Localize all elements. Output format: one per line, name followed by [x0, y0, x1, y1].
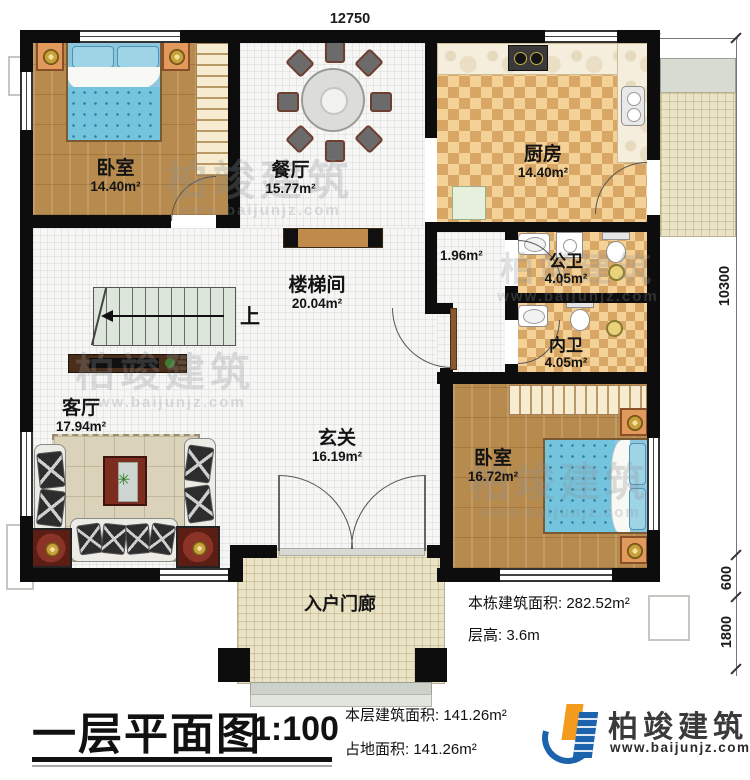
room-label-kitchen: 厨房 14.40m²	[498, 144, 588, 180]
side-table	[176, 526, 220, 568]
porch-pillar-left	[218, 648, 250, 682]
pillow	[117, 46, 159, 68]
room-area: 4.05m²	[528, 355, 604, 370]
room-area: 16.19m²	[292, 449, 382, 464]
room-label-bath-inner: 内卫 4.05m²	[528, 336, 604, 370]
room-label-porch: 入户门廊	[290, 594, 390, 614]
dimension-top: 12750	[300, 11, 400, 27]
room-name: 卧室	[448, 448, 538, 469]
room-area: 16.72m²	[448, 469, 538, 484]
cushion	[148, 522, 176, 555]
cushion	[184, 444, 215, 483]
entry-door-leaf	[278, 475, 280, 551]
note-value: 282.52m²	[566, 595, 629, 612]
bed	[543, 438, 649, 534]
page-title: 一层平面图	[32, 698, 262, 762]
window	[545, 30, 617, 43]
side-step-outline	[648, 595, 690, 641]
room-name: 入户门廊	[290, 594, 390, 614]
dimension-line-right	[736, 39, 737, 676]
pillow	[629, 443, 646, 485]
room-name: 客厅	[36, 398, 126, 419]
note-total-area: 本栋建筑面积: 282.52m²	[468, 592, 630, 613]
lamp	[43, 49, 59, 65]
floor-area-line: 本层建筑面积: 141.26m²	[345, 704, 507, 725]
cushion	[100, 523, 127, 555]
brand-logo: 柏竣建筑 www.baijunjz.com	[540, 694, 745, 774]
room-label-bedroom1: 卧室 14.40m²	[68, 158, 163, 194]
side-table	[30, 528, 72, 568]
room-name: 楼梯间	[262, 275, 372, 296]
shower-head	[606, 320, 623, 337]
porch-pillar-right	[415, 648, 447, 682]
note-floor-height: 层高: 3.6m	[468, 624, 540, 645]
room-name: 餐厅	[243, 160, 338, 181]
nightstand	[620, 536, 648, 564]
lamp	[627, 415, 643, 431]
sideboard-end	[284, 229, 298, 247]
nightstand	[620, 408, 648, 436]
wall-dining-kitchen	[425, 30, 437, 138]
washer-drum	[563, 239, 577, 253]
cushion	[36, 489, 66, 528]
nightstand	[36, 41, 64, 71]
note-label: 占地面积:	[345, 741, 413, 758]
note-label: 层高:	[468, 627, 506, 644]
lamp	[45, 542, 60, 557]
bed	[66, 41, 162, 142]
window	[160, 568, 228, 582]
wall-bedroom1-east	[228, 43, 240, 228]
bed-sheet	[611, 440, 630, 532]
room-label-foyer: 玄关 16.19m²	[292, 428, 382, 464]
pillow	[629, 488, 646, 530]
wall-corridor	[425, 222, 437, 314]
room-label-living: 客厅 17.94m²	[36, 398, 126, 434]
room-area: 14.40m²	[498, 165, 588, 180]
plant	[165, 358, 175, 368]
entry-door-sill	[279, 548, 425, 556]
wardrobe	[196, 43, 229, 176]
dining-table-center	[320, 87, 348, 115]
note-value: 141.26m²	[443, 707, 506, 724]
door-opening-bath-inner	[505, 320, 518, 364]
room-label-dining: 餐厅 15.77m²	[243, 160, 338, 196]
scale-label: 1:100	[252, 710, 339, 749]
toilet-tank	[602, 232, 630, 240]
site-area-line: 占地面积: 141.26m²	[345, 738, 477, 759]
wall-jog-left	[230, 545, 243, 582]
lamp	[192, 541, 207, 556]
window	[20, 72, 33, 130]
cushion	[184, 484, 215, 523]
side-porch-roofband	[660, 58, 736, 94]
dining-chair	[370, 92, 392, 112]
wall-bedroom2-north	[437, 372, 660, 384]
tv	[89, 358, 159, 368]
burner	[530, 52, 543, 65]
fridge	[452, 186, 486, 220]
bed-duvet	[68, 87, 160, 140]
room-name: 玄关	[292, 428, 382, 449]
plant: ✳	[117, 470, 130, 490]
note-value: 3.6m	[506, 627, 539, 644]
wall-jog-right	[440, 545, 453, 582]
window	[80, 30, 180, 43]
dimension-right-step: 600	[719, 553, 735, 603]
note-label: 本层建筑面积:	[345, 707, 443, 724]
lamp	[169, 49, 185, 65]
door-opening-kitchen	[647, 160, 660, 215]
cushion	[36, 451, 66, 490]
dimension-right-main: 10300	[717, 251, 733, 321]
door-opening-bath-public	[505, 240, 518, 286]
bed-duvet	[545, 440, 615, 532]
room-area: 20.04m²	[262, 296, 372, 311]
room-area: 14.40m²	[68, 179, 163, 194]
sink-bowl	[627, 92, 641, 106]
entry-porch-floor	[237, 548, 445, 684]
coffee-table: ✳	[103, 456, 147, 506]
note-label: 本栋建筑面积:	[468, 595, 566, 612]
stove	[508, 45, 548, 71]
brand-logo-icon	[540, 698, 604, 768]
entry-door-leaf	[424, 475, 426, 551]
shower-head	[608, 264, 625, 281]
wall-kitchen-bath	[425, 222, 660, 232]
sink-bowl	[627, 108, 641, 122]
pillow	[72, 46, 114, 68]
room-label-bedroom2: 卧室 16.72m²	[448, 448, 538, 484]
room-name: 卧室	[68, 158, 163, 179]
window	[500, 568, 612, 582]
floor-plan-page: 12750 10300 600 1800	[0, 0, 750, 780]
tv-cabinet	[68, 354, 187, 373]
sideboard	[283, 228, 383, 248]
kitchen-sink	[621, 86, 645, 126]
room-area: 4.05m²	[528, 271, 604, 286]
room-label-bath-public: 公卫 4.05m²	[528, 252, 604, 286]
dimension-right-porch: 1800	[719, 602, 735, 662]
stairs-arrow-head	[101, 310, 113, 322]
burner	[514, 52, 527, 65]
sideboard-end	[368, 229, 382, 247]
wall-bath-divider	[505, 293, 660, 303]
toilet-bowl	[570, 309, 590, 331]
window	[20, 432, 33, 516]
dining-table	[301, 68, 365, 132]
stairs-arrow-line	[112, 315, 224, 317]
dining-chair	[325, 140, 345, 162]
room-area: 15.77m²	[243, 181, 338, 196]
window	[647, 438, 660, 530]
note-value: 141.26m²	[413, 741, 476, 758]
room-area: 17.94m²	[36, 419, 126, 434]
toilet-bowl	[606, 241, 626, 263]
brand-site: www.baijunjz.com	[610, 740, 750, 755]
corridor-area-label: 1.96m²	[440, 248, 483, 263]
room-label-stairwell: 楼梯间 20.04m²	[262, 275, 372, 311]
room-name: 公卫	[528, 252, 604, 271]
side-porch-floor	[660, 92, 736, 237]
room-name: 厨房	[498, 144, 588, 165]
stairs-up-label: 上	[240, 300, 260, 329]
title-underline-thin	[32, 765, 332, 767]
lamp	[627, 543, 643, 559]
dining-chair	[325, 41, 345, 63]
dining-chair	[277, 92, 299, 112]
room-name: 内卫	[528, 336, 604, 355]
nightstand	[162, 41, 190, 71]
